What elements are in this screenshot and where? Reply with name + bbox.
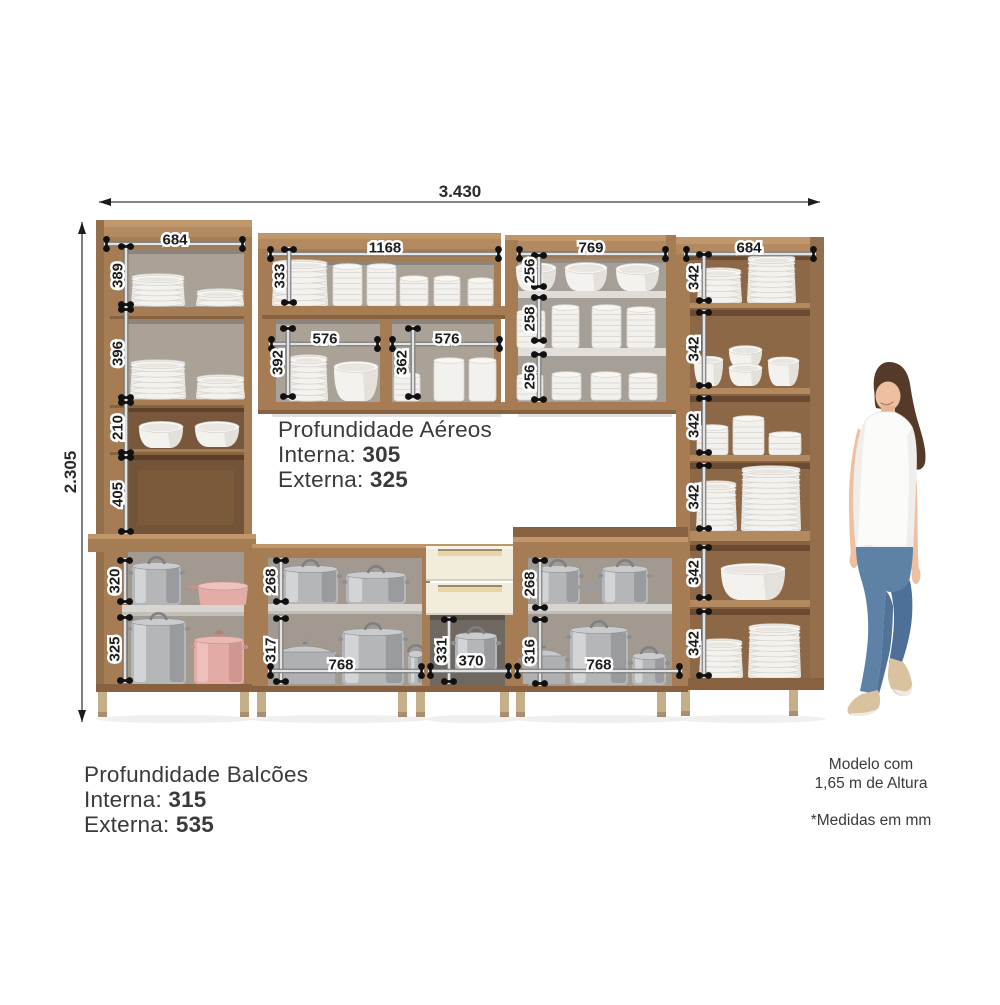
- svg-text:370: 370: [458, 652, 483, 669]
- svg-text:396: 396: [109, 341, 126, 366]
- svg-text:258: 258: [521, 306, 538, 331]
- svg-text:342: 342: [685, 413, 702, 438]
- svg-text:Profundidade Aéreos: Profundidade Aéreos: [278, 417, 492, 442]
- svg-text:Interna: 305: Interna: 305: [278, 442, 401, 467]
- svg-text:*Medidas em mm: *Medidas em mm: [811, 812, 932, 829]
- svg-text:Profundidade Balcões: Profundidade Balcões: [84, 762, 308, 787]
- svg-text:Externa: 535: Externa: 535: [84, 812, 214, 837]
- svg-text:Externa: 325: Externa: 325: [278, 467, 408, 492]
- svg-text:1,65 m de Altura: 1,65 m de Altura: [815, 775, 928, 792]
- svg-text:210: 210: [109, 415, 126, 440]
- svg-text:317: 317: [262, 637, 279, 662]
- svg-text:Interna: 315: Interna: 315: [84, 787, 207, 812]
- svg-text:576: 576: [434, 330, 459, 347]
- svg-text:342: 342: [685, 560, 702, 585]
- svg-text:576: 576: [312, 330, 337, 347]
- svg-text:769: 769: [578, 239, 603, 256]
- svg-text:268: 268: [521, 571, 538, 596]
- svg-text:362: 362: [393, 350, 410, 375]
- svg-text:256: 256: [521, 364, 538, 389]
- svg-text:342: 342: [685, 631, 702, 656]
- svg-text:342: 342: [685, 336, 702, 361]
- svg-text:768: 768: [586, 656, 611, 673]
- svg-text:2.305: 2.305: [61, 451, 80, 494]
- svg-text:3.430: 3.430: [439, 182, 482, 201]
- svg-text:256: 256: [521, 258, 538, 283]
- svg-text:342: 342: [685, 484, 702, 509]
- svg-text:684: 684: [162, 231, 188, 248]
- svg-text:325: 325: [106, 636, 123, 661]
- svg-text:Modelo com: Modelo com: [829, 756, 913, 773]
- svg-text:684: 684: [736, 239, 762, 256]
- svg-text:331: 331: [433, 638, 450, 663]
- svg-text:392: 392: [269, 350, 286, 375]
- svg-text:342: 342: [685, 265, 702, 290]
- svg-text:320: 320: [106, 568, 123, 593]
- svg-text:316: 316: [521, 639, 538, 664]
- svg-text:405: 405: [109, 482, 126, 507]
- svg-text:768: 768: [328, 656, 353, 673]
- svg-text:389: 389: [109, 263, 126, 288]
- svg-text:268: 268: [262, 568, 279, 593]
- svg-text:1168: 1168: [369, 239, 402, 256]
- svg-text:333: 333: [271, 263, 288, 288]
